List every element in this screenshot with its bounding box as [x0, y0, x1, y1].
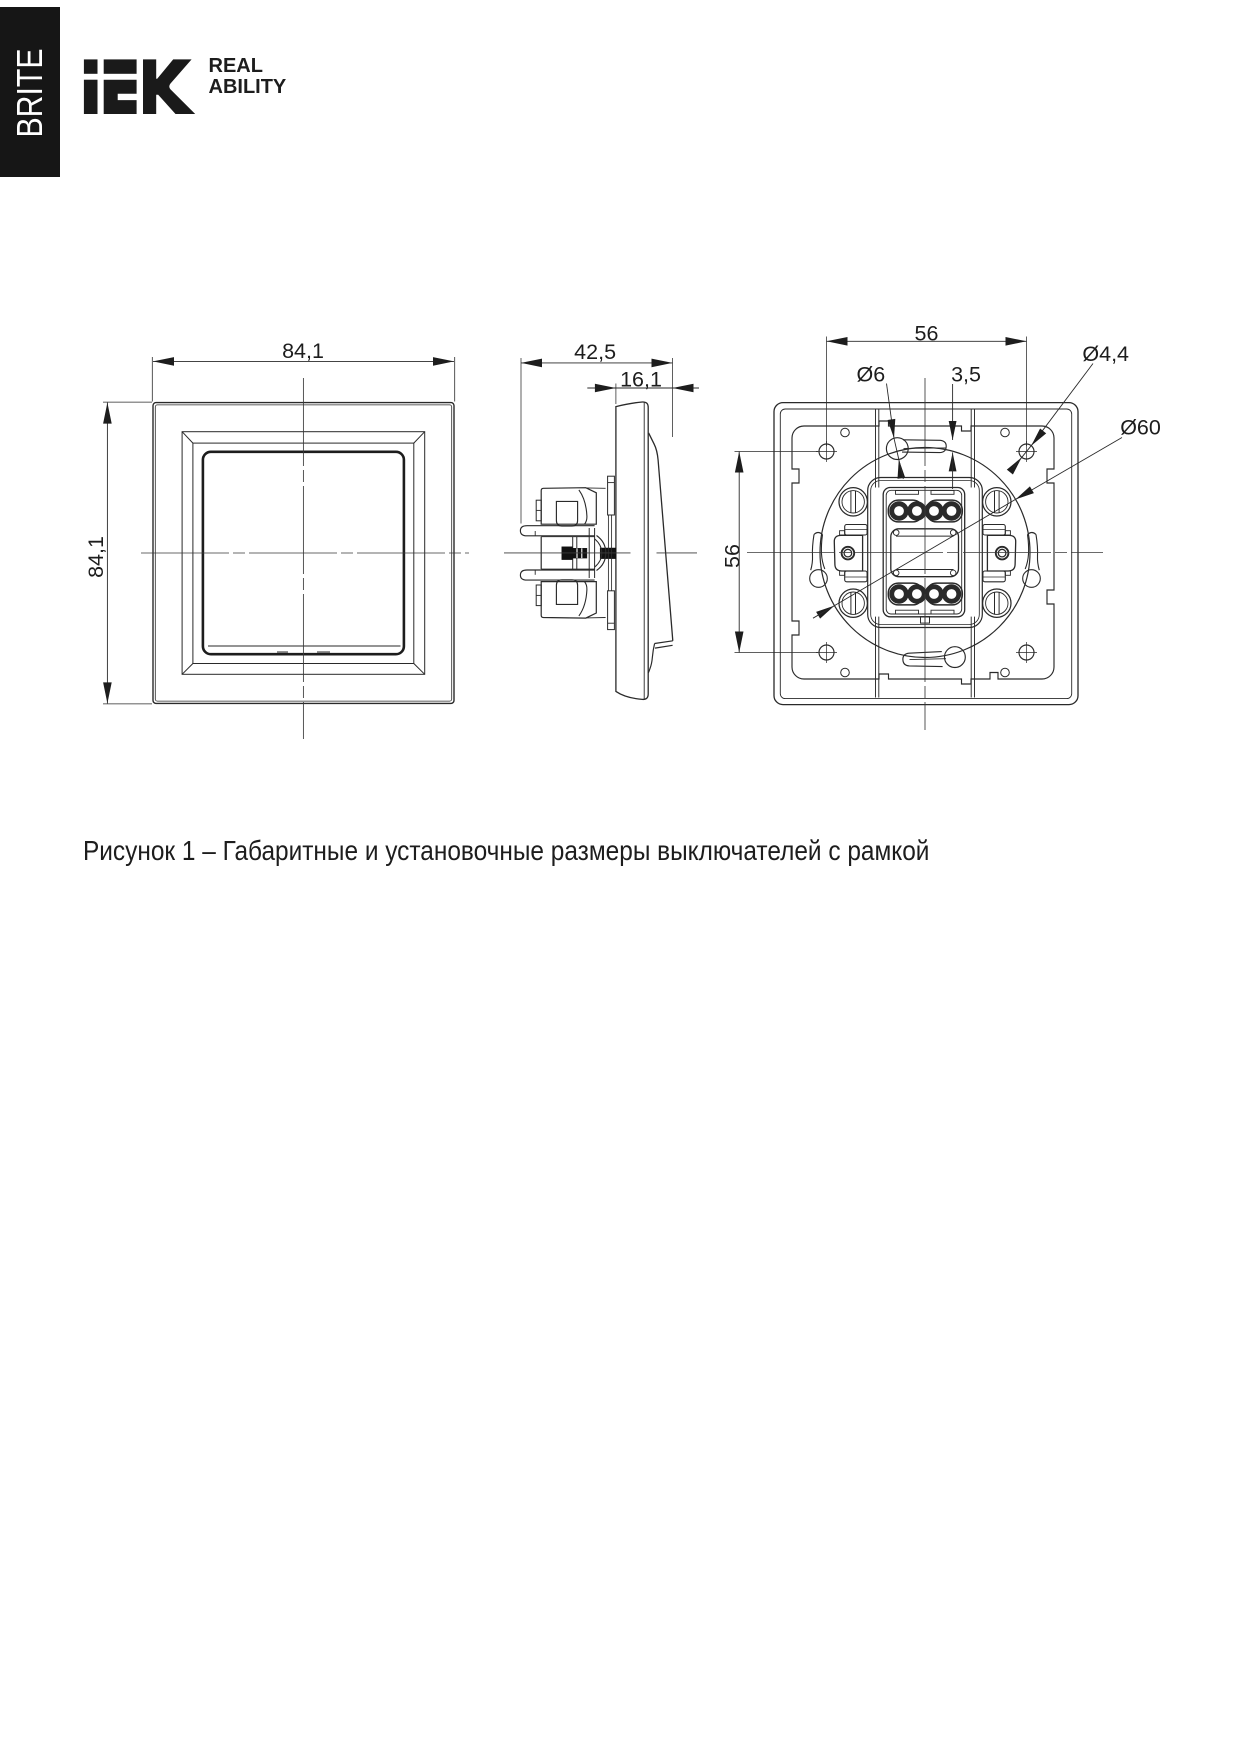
- svg-text:84,1: 84,1: [282, 339, 324, 363]
- svg-text:42,5: 42,5: [574, 340, 616, 364]
- svg-text:Ø4,4: Ø4,4: [1082, 342, 1129, 366]
- svg-text:56: 56: [915, 322, 939, 346]
- svg-text:3,5: 3,5: [951, 362, 981, 386]
- svg-text:Ø60: Ø60: [1120, 415, 1161, 439]
- svg-text:84,1: 84,1: [84, 536, 108, 578]
- svg-text:Ø6: Ø6: [857, 362, 886, 386]
- svg-text:16,1: 16,1: [620, 368, 662, 392]
- svg-text:56: 56: [720, 544, 744, 568]
